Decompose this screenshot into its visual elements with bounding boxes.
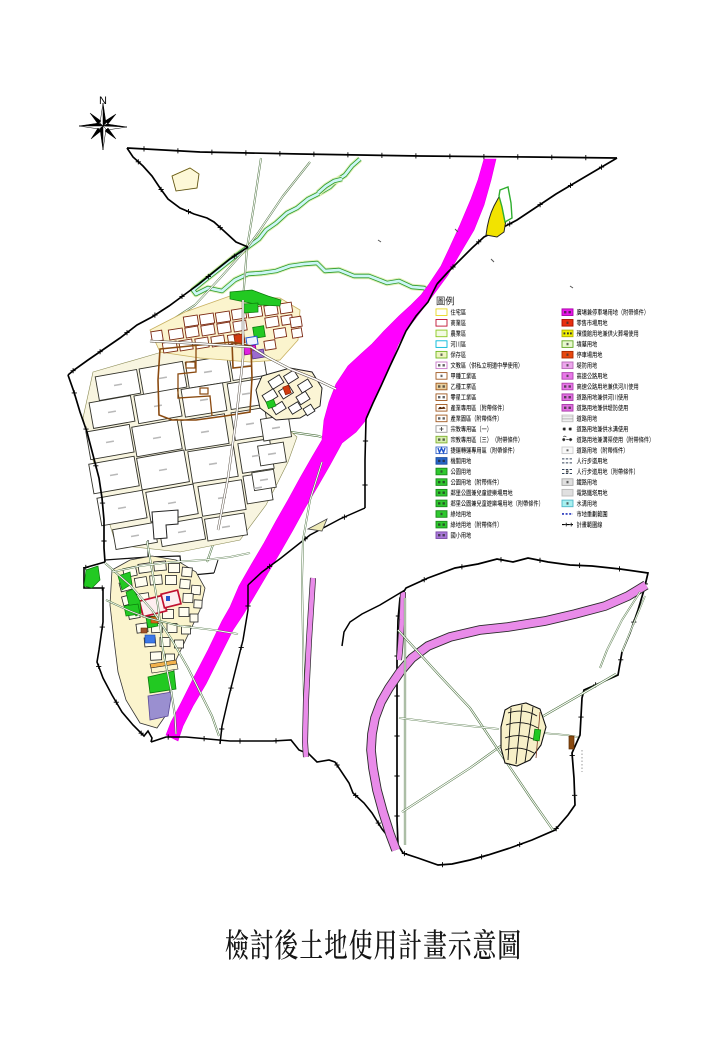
svg-text:N: N xyxy=(99,95,107,107)
